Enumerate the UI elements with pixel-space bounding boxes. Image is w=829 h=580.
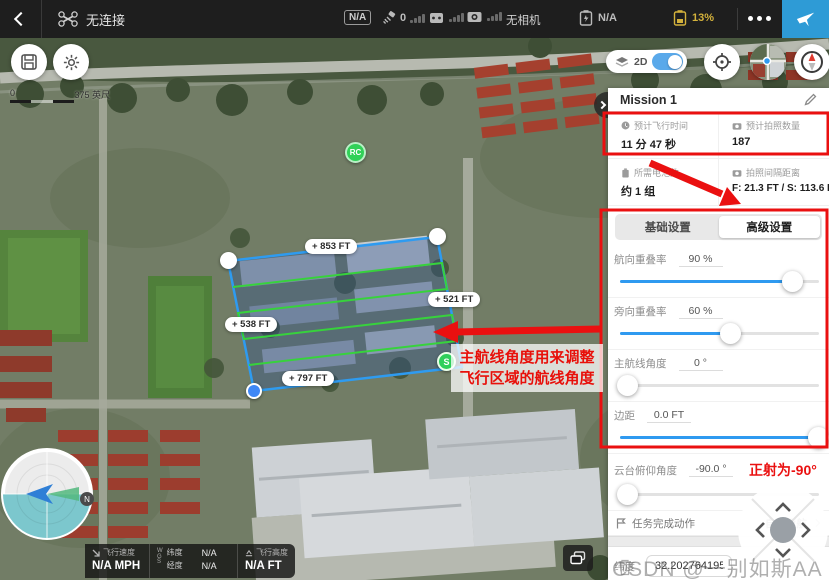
polygon-handle-top-left[interactable] [220,252,237,269]
telemetry-speed: 飞行速度 N/A MPH [85,544,149,578]
attitude-compass-widget: N [1,447,94,542]
compass-icon [799,49,825,75]
top-status-bar: 无连接 N/A 0 无相机 [0,0,829,38]
satellite-icon [380,9,398,27]
drone-icon [58,11,78,27]
note-line-1: 主航线角度用来调整 [457,347,597,368]
stat-value: 187 [732,136,823,148]
mission-title-bar: Mission 1 [608,88,829,112]
flight-mode-badge: N/A [344,10,371,25]
chevron-right-icon [598,101,606,109]
flight-area-polygon[interactable] [228,237,462,391]
stat-value: 约 1 组 [621,183,712,199]
gps-status: 0 [380,9,425,27]
app-window: S RC + 853 FT + 521 FT + 538 FT + 797 FT… [0,0,829,580]
setting-label: 航向重叠率 [614,252,667,267]
slider-thumb[interactable] [720,323,741,344]
aircraft-status: 无连接 [58,0,125,38]
north-label: N [84,495,90,504]
takeoff-button[interactable] [782,0,829,38]
slider-thumb[interactable] [782,271,803,292]
setting-side-overlap: 旁向重叠率 60 % [608,298,829,350]
rc-location-marker: RC [345,142,366,163]
course-angle-slider[interactable] [620,371,819,401]
gps-count: 0 [400,12,406,24]
more-menu-button[interactable] [748,16,771,21]
rc-signal [428,9,464,26]
photo-icon [732,122,742,130]
scale-start-label: 0 [10,88,15,98]
stat-label: 预计拍照数量 [746,119,800,132]
gimbal-annotation-text: 正射为-90° [749,460,817,480]
mission-title: Mission 1 [620,93,804,107]
speed-value: N/A MPH [92,560,142,572]
front-overlap-slider[interactable] [620,267,819,297]
edge-length-label: + 797 FT [282,371,334,386]
settings-tabs: 基础设置 高级设置 [615,214,822,240]
locate-button[interactable] [704,44,740,80]
mission-stats: 预计飞行时间 11 分 47 秒 预计拍照数量 187 所需 [608,112,829,206]
stat-label: 预计飞行时间 [634,119,688,132]
save-icon [20,53,38,71]
map-preview-button[interactable] [750,44,786,80]
rc-battery-icon [672,9,688,27]
slider-thumb[interactable] [617,375,638,396]
camera-signal-bars-icon [487,12,502,21]
setting-value-field[interactable]: -90.0 ° [689,463,733,477]
stat-flight-time: 预计飞行时间 11 分 47 秒 [608,112,718,159]
setting-value-field[interactable]: 60 % [679,305,723,319]
rc-battery-value: 13% [692,12,714,24]
side-overlap-slider[interactable] [620,319,819,349]
stat-batteries: 所需电池数 约 1 组 [608,159,718,206]
stat-photo-interval: 拍照间隔距离 F: 21.3 FT / S: 113.6 FT [718,159,829,206]
wgs-label: WGS [157,547,163,578]
note-line-2: 飞行区域的航线角度 [457,368,597,389]
altitude-value: N/A FT [245,560,288,572]
stat-value: 11 分 47 秒 [621,136,712,152]
2d-toggle-switch[interactable] [652,53,683,70]
setting-label: 旁向重叠率 [614,304,667,319]
aircraft-battery-icon [578,9,594,27]
telemetry-lng-value: N/A [191,560,217,573]
telemetry-coordinates: WGS 纬度 N/A 经度 N/A [149,544,237,578]
altitude-icon [245,549,253,557]
stat-label: 所需电池数 [634,166,679,179]
setting-label: 主航线角度 [614,356,667,371]
polygon-handle-top-right[interactable] [429,228,446,245]
scale-end-label: 375 英尺 [74,88,110,101]
course-angle-note: 主航线角度用来调整 飞行区域的航线角度 [451,344,603,392]
setting-margin: 边距 0.0 FT [608,402,829,454]
airplane-icon [795,9,817,29]
battery-icon [621,168,630,178]
telemetry-altitude: 飞行高度 N/A FT [237,544,295,578]
setting-value-field[interactable]: 0 ° [679,357,723,371]
connection-status-label: 无连接 [86,10,125,29]
tab-basic-settings[interactable]: 基础设置 [617,216,719,238]
layers-icon [615,56,629,68]
map-thumbnail [750,44,786,80]
edge-length-label: + 538 FT [225,317,277,332]
telemetry-lng-label: 经度 [167,560,183,573]
slider-thumb[interactable] [617,484,638,505]
setting-value-field[interactable]: 0.0 FT [647,409,691,423]
slider-thumb[interactable] [808,427,829,448]
csdn-watermark: CSDN @一别如斯AA [612,553,823,580]
screenshot-layer-button[interactable] [563,545,593,571]
flag-icon [616,518,626,529]
stat-label: 拍照间隔距离 [746,166,800,179]
speed-label: 飞行速度 [103,547,135,558]
rc-signal-bars-icon [449,13,464,22]
compass-reset-button[interactable] [794,44,829,80]
setting-label: 云台俯仰角度 [614,463,677,478]
aircraft-battery-status: N/A [578,9,617,27]
camera-signal [466,9,502,24]
gps-signal-bars-icon [410,14,425,23]
interval-icon [732,169,742,177]
telemetry-lat-label: 纬度 [167,547,183,560]
telemetry-lat-value: N/A [191,547,217,560]
copy-frames-icon [570,551,586,565]
telemetry-bar: 飞行速度 N/A MPH WGS 纬度 N/A 经度 N/A 飞行高度 N/A … [85,544,295,578]
rc-battery-status: 13% [672,9,714,27]
advanced-settings-list: 航向重叠率 90 % 旁向重叠率 60 % 主航 [608,246,829,511]
speed-arrow-icon [92,549,100,557]
setting-front-overlap: 航向重叠率 90 % [608,246,829,298]
map-2d-label: 2D [634,56,647,68]
setting-label: 边距 [614,408,635,423]
stat-photo-count: 预计拍照数量 187 [718,112,829,159]
back-chevron-icon [13,12,27,26]
topbar-divider [737,8,738,30]
setting-course-angle: 主航线角度 0 ° [608,350,829,402]
margin-slider[interactable] [620,423,819,453]
polygon-handle-bottom-left[interactable] [246,383,262,399]
edge-length-label: + 853 FT [305,239,357,254]
settings-button[interactable] [53,44,89,80]
camera-status-label: 无相机 [506,12,541,28]
remote-controller-icon [428,9,445,26]
nudge-center-button[interactable] [770,517,796,543]
save-mission-button[interactable] [11,44,47,80]
gear-icon [62,53,81,72]
tab-advanced-settings[interactable]: 高级设置 [719,216,821,238]
crosshair-icon [712,52,732,72]
map-mode-toggle[interactable]: 2D [606,50,687,73]
edit-pencil-icon[interactable] [804,93,817,106]
edge-length-label: + 521 FT [428,292,480,307]
clock-icon [621,121,630,130]
setting-value-field[interactable]: 90 % [679,253,723,267]
altitude-label: 飞行高度 [256,547,288,558]
back-button[interactable] [0,0,42,38]
map-scale-bar: 0 375 英尺 [10,88,110,103]
stat-value: F: 21.3 FT / S: 113.6 FT [732,183,823,194]
camera-icon [466,9,483,24]
aircraft-battery-value: N/A [598,12,617,24]
